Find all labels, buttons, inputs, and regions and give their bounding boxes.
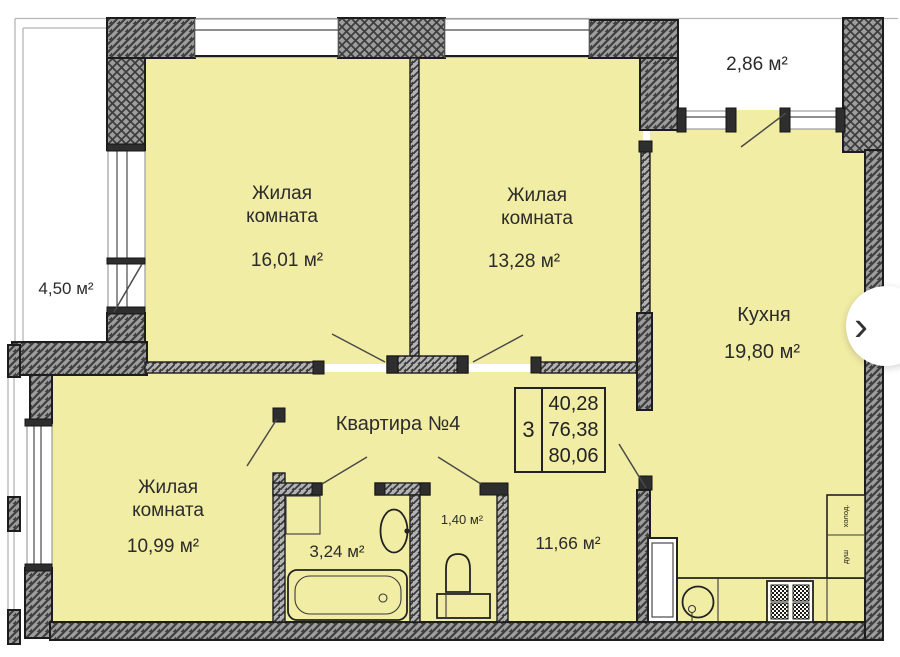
stamp-usable-area: 76,38	[543, 417, 604, 443]
area-stamp-table: 3 40,28 76,38 80,06	[514, 387, 606, 473]
next-image-button[interactable]: ›	[846, 286, 900, 366]
room-name-living-1: Жилая комната	[234, 183, 330, 229]
room-area-wc: 1,40 м²	[402, 512, 522, 528]
apartment-title: Квартира №4	[298, 412, 498, 436]
room-area-hallway: 11,66 м²	[488, 533, 648, 554]
stove	[767, 581, 813, 622]
room-name-kitchen: Кухня	[684, 303, 844, 327]
chevron-right-icon: ›	[854, 286, 868, 366]
vent-shaft	[648, 538, 677, 622]
room-area-living-3: 10,99 м²	[83, 536, 243, 559]
room-area-living-1: 16,01 м²	[207, 250, 367, 273]
stamp-total-area: 80,06	[543, 443, 604, 469]
stamp-rooms-count: 3	[516, 389, 543, 471]
room-name-living-3: Жилая комната	[120, 477, 216, 523]
stamp-living-area: 40,28	[543, 391, 604, 417]
shower-label: душ	[838, 527, 854, 587]
room-area-bathroom: 3,24 м²	[257, 542, 417, 562]
room-name-living-2: Жилая комната	[489, 185, 585, 231]
floorplan-canvas: Жилая комната 16,01 м² Жилая комната 13,…	[0, 0, 900, 657]
balcony-area-top: 2,86 м²	[677, 54, 837, 77]
room-area-kitchen: 19,80 м²	[682, 340, 842, 364]
balcony-area-left: 4,50 м²	[6, 279, 126, 299]
room-area-living-2: 13,28 м²	[444, 251, 604, 274]
